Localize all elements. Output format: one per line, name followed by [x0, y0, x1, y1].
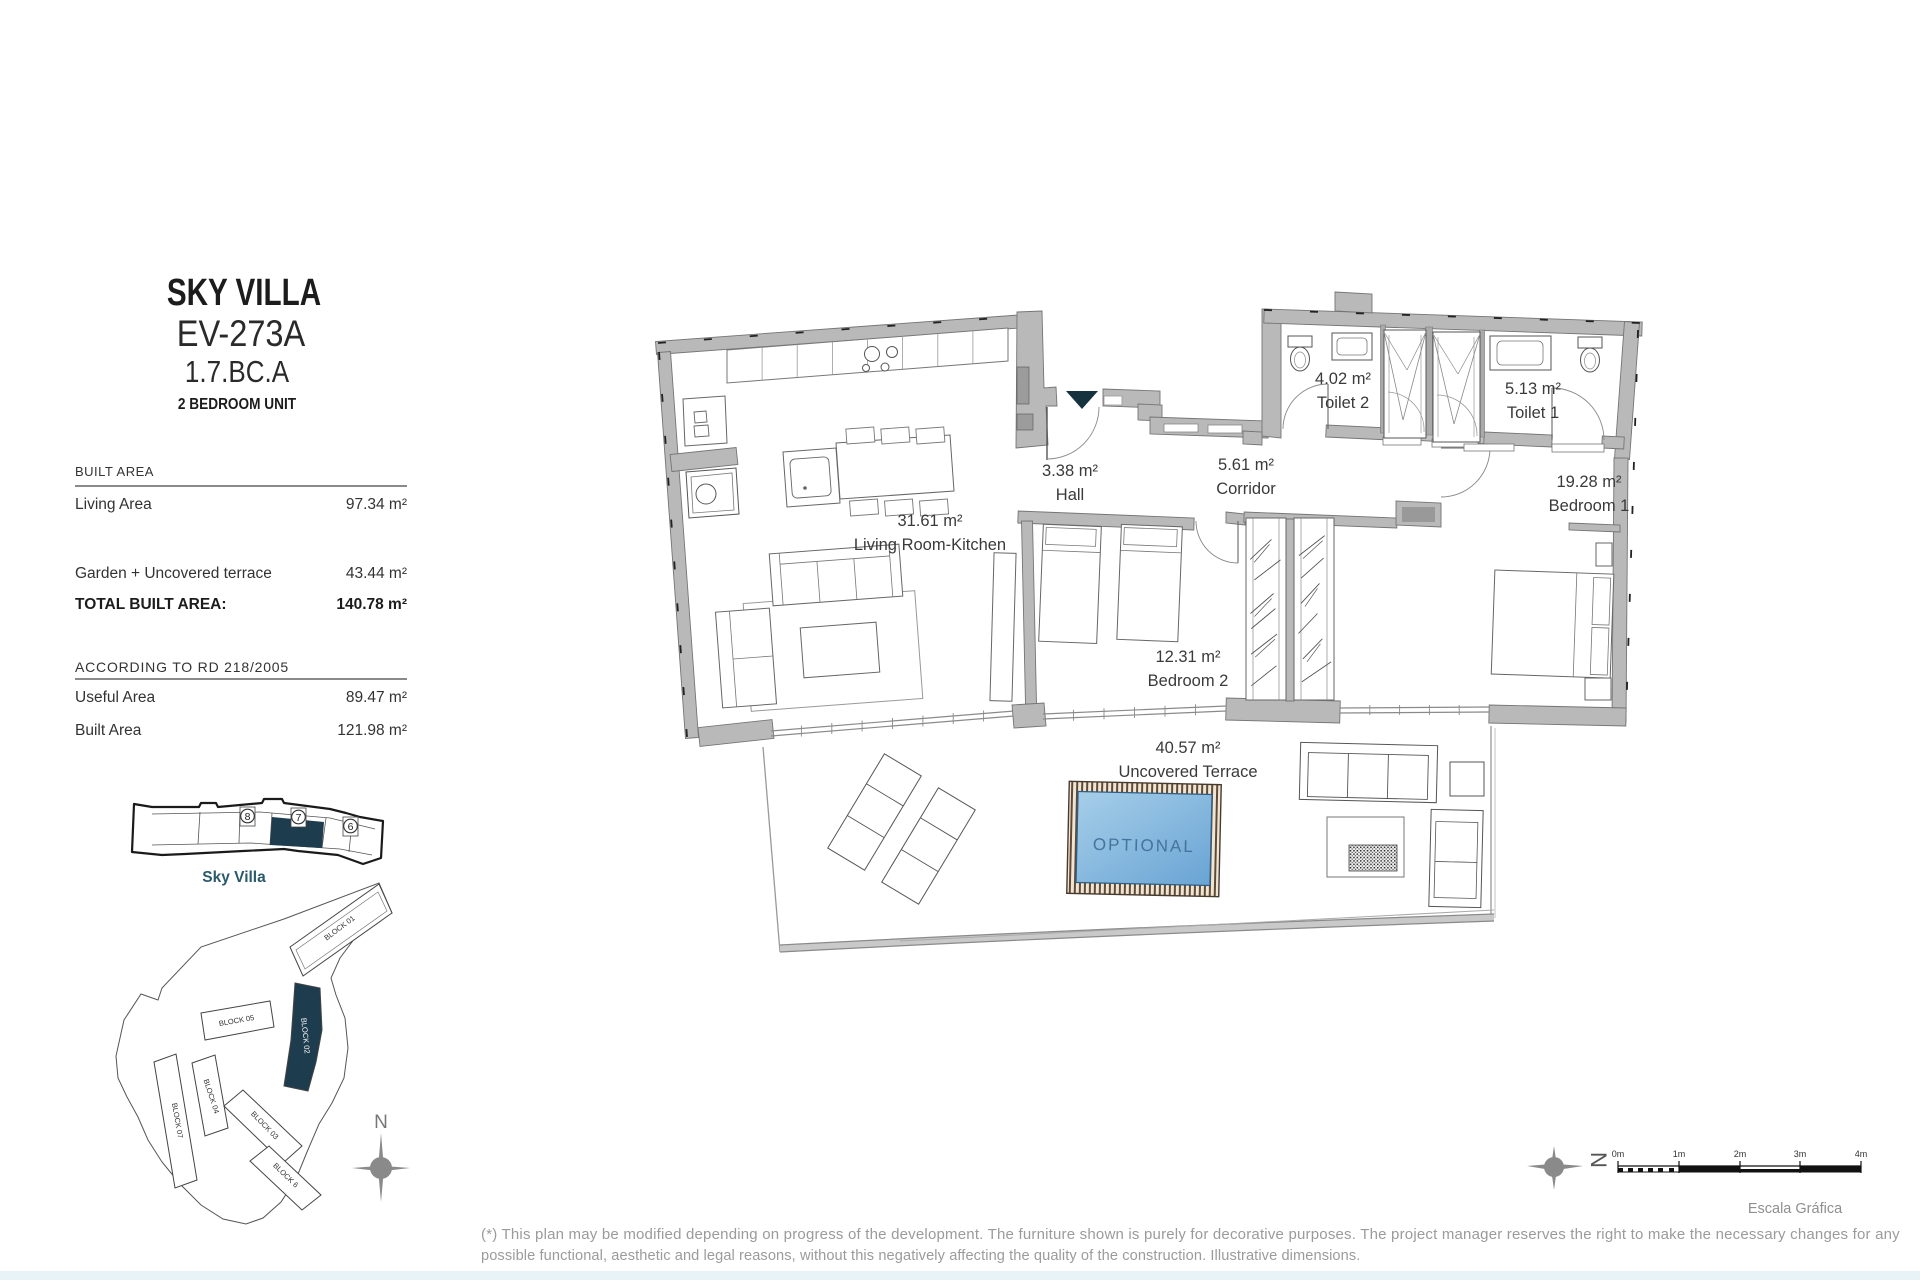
- svg-text:6: 6: [348, 821, 354, 833]
- svg-text:N: N: [1586, 1152, 1611, 1168]
- svg-text:12.31 m²: 12.31 m²: [1155, 648, 1221, 666]
- svg-text:3m: 3m: [1794, 1149, 1807, 1159]
- svg-text:31.61 m²: 31.61 m²: [897, 512, 963, 530]
- svg-text:8: 8: [245, 811, 251, 823]
- svg-text:5.13 m²: 5.13 m²: [1505, 380, 1561, 398]
- svg-text:Sky Villa: Sky Villa: [202, 869, 266, 886]
- svg-text:0m: 0m: [1612, 1149, 1625, 1159]
- svg-text:19.28 m²: 19.28 m²: [1556, 473, 1622, 491]
- svg-text:Uncovered Terrace: Uncovered Terrace: [1118, 763, 1257, 781]
- svg-text:Corridor: Corridor: [1216, 480, 1276, 498]
- svg-text:4.02 m²: 4.02 m²: [1315, 370, 1371, 388]
- svg-text:5.61 m²: 5.61 m²: [1218, 456, 1274, 474]
- svg-text:Bedroom 2: Bedroom 2: [1148, 672, 1229, 690]
- svg-text:2m: 2m: [1734, 1149, 1747, 1159]
- svg-text:OPTIONAL: OPTIONAL: [1093, 835, 1195, 856]
- svg-text:1m: 1m: [1673, 1149, 1686, 1159]
- svg-text:4m: 4m: [1855, 1149, 1868, 1159]
- svg-text:3.38 m²: 3.38 m²: [1042, 462, 1098, 480]
- svg-text:Living Room-Kitchen: Living Room-Kitchen: [854, 536, 1006, 554]
- svg-text:Toilet 1: Toilet 1: [1507, 404, 1559, 422]
- svg-text:Escala Gráfica: Escala Gráfica: [1748, 1201, 1843, 1217]
- svg-text:N: N: [374, 1112, 388, 1133]
- svg-text:40.57 m²: 40.57 m²: [1155, 739, 1221, 757]
- svg-text:7: 7: [296, 812, 302, 824]
- svg-text:Hall: Hall: [1056, 486, 1084, 504]
- svg-text:Toilet 2: Toilet 2: [1317, 394, 1369, 412]
- svg-text:Bedroom 1: Bedroom 1: [1549, 497, 1630, 515]
